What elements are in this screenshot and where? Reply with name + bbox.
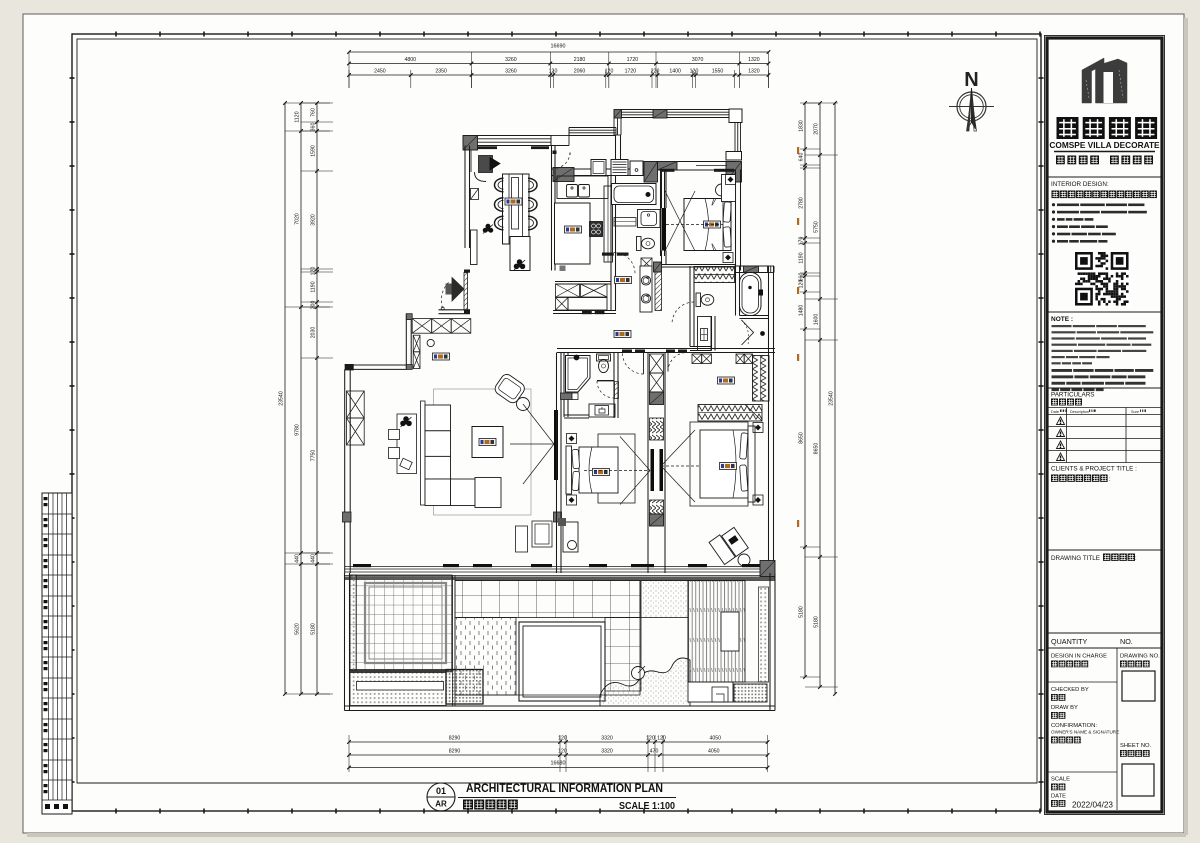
svg-text:5180: 5180 bbox=[799, 606, 805, 618]
svg-text:AR: AR bbox=[435, 800, 447, 809]
svg-text:Sure: Sure bbox=[1131, 410, 1139, 414]
svg-text:1830: 1830 bbox=[799, 120, 805, 132]
svg-text:5180: 5180 bbox=[814, 616, 820, 628]
svg-text:360: 360 bbox=[311, 123, 317, 132]
svg-text:01: 01 bbox=[436, 786, 446, 796]
svg-text:2180: 2180 bbox=[574, 57, 586, 63]
svg-text:COMSPE VILLA DECORATE: COMSPE VILLA DECORATE bbox=[1049, 140, 1160, 150]
svg-text:5620: 5620 bbox=[295, 623, 301, 635]
svg-text:9780: 9780 bbox=[295, 424, 301, 436]
svg-text:1120: 1120 bbox=[295, 111, 301, 122]
svg-text:1720: 1720 bbox=[627, 57, 639, 63]
svg-text:DATE: DATE bbox=[1051, 794, 1066, 800]
svg-text:1320: 1320 bbox=[748, 57, 760, 63]
svg-text:8290: 8290 bbox=[449, 735, 461, 741]
svg-text:1720: 1720 bbox=[625, 68, 637, 74]
svg-text:NOTE :: NOTE : bbox=[1051, 316, 1073, 323]
svg-text:1320: 1320 bbox=[748, 68, 760, 74]
svg-text:440: 440 bbox=[295, 554, 301, 563]
svg-text:CONFIRMATION:: CONFIRMATION: bbox=[1051, 723, 1097, 729]
svg-text:1190: 1190 bbox=[311, 281, 317, 292]
svg-text:120: 120 bbox=[646, 735, 655, 741]
svg-text:8650: 8650 bbox=[814, 443, 820, 455]
svg-text:2060: 2060 bbox=[574, 68, 586, 74]
svg-text:5750: 5750 bbox=[814, 221, 820, 233]
svg-text:2030: 2030 bbox=[311, 327, 317, 339]
svg-text:120: 120 bbox=[558, 748, 567, 754]
svg-text:1480: 1480 bbox=[799, 305, 805, 317]
svg-text:3320: 3320 bbox=[601, 735, 613, 741]
svg-text:16690: 16690 bbox=[551, 44, 566, 50]
svg-text:DRAW BY: DRAW BY bbox=[1051, 705, 1078, 711]
svg-text:3260: 3260 bbox=[505, 57, 517, 63]
svg-text:23540: 23540 bbox=[279, 391, 285, 406]
svg-text:SCALE: SCALE bbox=[1051, 777, 1070, 783]
svg-text:ARCHITECTURAL INFORMATION PLAN: ARCHITECTURAL INFORMATION PLAN bbox=[466, 783, 663, 795]
svg-text:640: 640 bbox=[799, 153, 805, 162]
svg-text:1190: 1190 bbox=[799, 252, 805, 263]
svg-text:16680: 16680 bbox=[551, 761, 566, 767]
svg-text:4050: 4050 bbox=[710, 735, 722, 741]
svg-text:DRAWING TITLE: DRAWING TITLE bbox=[1051, 555, 1100, 562]
svg-text:1400: 1400 bbox=[669, 68, 681, 74]
svg-text:2450: 2450 bbox=[374, 68, 386, 74]
svg-text:2350: 2350 bbox=[435, 68, 447, 74]
svg-text:3260: 3260 bbox=[505, 68, 517, 74]
svg-text:2070: 2070 bbox=[814, 123, 820, 135]
svg-text:3320: 3320 bbox=[601, 748, 613, 754]
svg-text:2780: 2780 bbox=[799, 197, 805, 209]
svg-text:7750: 7750 bbox=[311, 450, 317, 462]
svg-text:QUANTITY: QUANTITY bbox=[1051, 637, 1088, 646]
svg-text:CHECKED BY: CHECKED BY bbox=[1051, 687, 1089, 693]
svg-text:760: 760 bbox=[311, 108, 317, 117]
svg-text:4050: 4050 bbox=[708, 748, 720, 754]
svg-text:Date: Date bbox=[1051, 410, 1059, 414]
svg-text:120: 120 bbox=[558, 735, 567, 741]
svg-text:1600: 1600 bbox=[814, 314, 820, 326]
svg-text:7020: 7020 bbox=[295, 213, 301, 225]
svg-text:2022/04/23: 2022/04/23 bbox=[1072, 801, 1113, 810]
svg-text:120: 120 bbox=[311, 267, 317, 276]
svg-text:120: 120 bbox=[799, 280, 805, 289]
svg-text:1550: 1550 bbox=[712, 68, 724, 74]
svg-text:DRAWING NO.: DRAWING NO. bbox=[1120, 654, 1160, 660]
svg-text:470: 470 bbox=[650, 748, 659, 754]
svg-text:Description: Description bbox=[1070, 410, 1089, 414]
svg-text:120: 120 bbox=[690, 68, 699, 74]
svg-text:SCALE 1:100: SCALE 1:100 bbox=[619, 801, 675, 812]
svg-text:INTERIOR DESIGN:: INTERIOR DESIGN: bbox=[1051, 181, 1109, 188]
svg-text:440: 440 bbox=[311, 554, 317, 563]
svg-text:3920: 3920 bbox=[311, 214, 317, 226]
svg-text:NO.: NO. bbox=[1120, 637, 1133, 646]
svg-text:DESIGN IN CHARGE: DESIGN IN CHARGE bbox=[1051, 654, 1107, 660]
svg-text:23540: 23540 bbox=[829, 391, 835, 406]
svg-text:1590: 1590 bbox=[311, 145, 317, 157]
svg-text:OWNER'S NAME & SIGNATURE: OWNER'S NAME & SIGNATURE bbox=[1051, 730, 1119, 735]
svg-text:3070: 3070 bbox=[692, 57, 704, 63]
svg-text:5180: 5180 bbox=[311, 623, 317, 635]
svg-text:8290: 8290 bbox=[449, 748, 461, 754]
svg-text:8650: 8650 bbox=[799, 432, 805, 444]
svg-text:PARTICULARS: PARTICULARS bbox=[1051, 392, 1095, 399]
svg-text:4800: 4800 bbox=[404, 57, 416, 63]
svg-text:120: 120 bbox=[657, 735, 666, 741]
svg-text:SHEET NO.: SHEET NO. bbox=[1120, 743, 1152, 749]
svg-text:N: N bbox=[964, 69, 978, 91]
svg-text:CLIENTS & PROJECT TITLE :: CLIENTS & PROJECT TITLE : bbox=[1051, 466, 1137, 473]
